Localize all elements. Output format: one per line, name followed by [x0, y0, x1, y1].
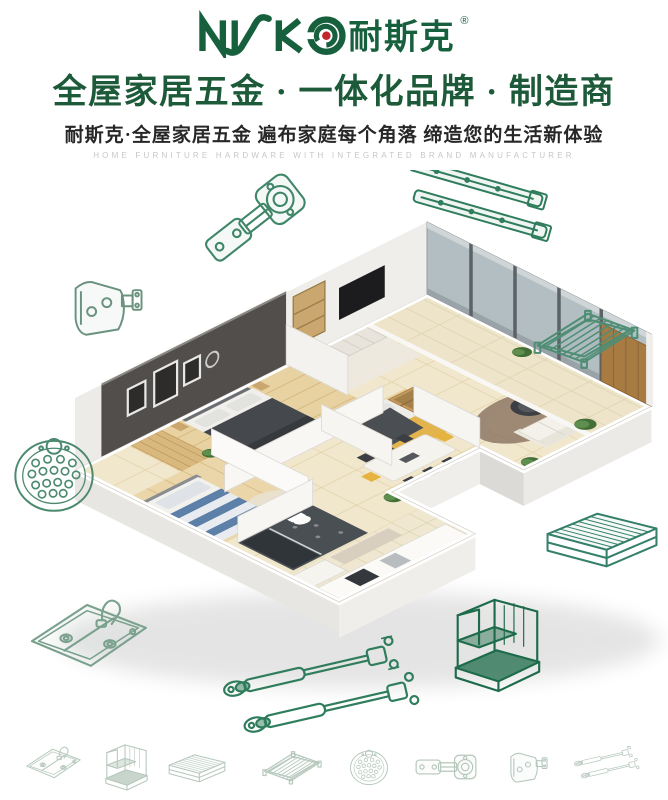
logo-cn-text: 耐斯克 [348, 18, 455, 56]
poster: 耐斯克 ® 全屋家居五金 · 一体化品牌 · 制造商 耐斯克·全屋家居五金 遍布… [0, 0, 668, 800]
hero-artwork [0, 170, 668, 800]
concealed-hinge-icon-small [416, 755, 476, 778]
floorplan-render [60, 222, 668, 688]
gas-strut-icon-small [573, 745, 639, 782]
headline: 全屋家居五金 · 一体化品牌 · 制造商 [0, 74, 668, 112]
wire-basket-icon-small [169, 755, 225, 782]
cabinet-bracket-icon [76, 282, 142, 335]
logo-red-dot [322, 31, 330, 39]
tagline-en: HOME FURNITURE HARDWARE WITH INTEGRATED … [0, 151, 668, 160]
wire-rack-icon-small [106, 745, 147, 790]
subheadline: 耐斯克·全屋家居五金 遍布家庭每个角落 缔造您的生活新体验 [0, 120, 668, 147]
wire-basket-icon [548, 514, 657, 567]
wire-shelf-icon-small [263, 752, 321, 784]
concealed-hinge-icon [199, 171, 309, 269]
nisko-logo-icon: 耐斯克 ® [194, 10, 474, 58]
bottom-icon-row [27, 745, 640, 790]
registered-mark: ® [460, 15, 468, 27]
double-sink-icon-small [27, 747, 81, 778]
logo-latin-letters [202, 17, 342, 52]
perforated-plate-icon-small [351, 750, 388, 784]
header: 耐斯克 ® 全屋家居五金 · 一体化品牌 · 制造商 耐斯克·全屋家居五金 遍布… [0, 0, 668, 160]
cabinet-bracket-icon-small [511, 753, 547, 782]
brand-logo: 耐斯克 ® [194, 10, 474, 58]
